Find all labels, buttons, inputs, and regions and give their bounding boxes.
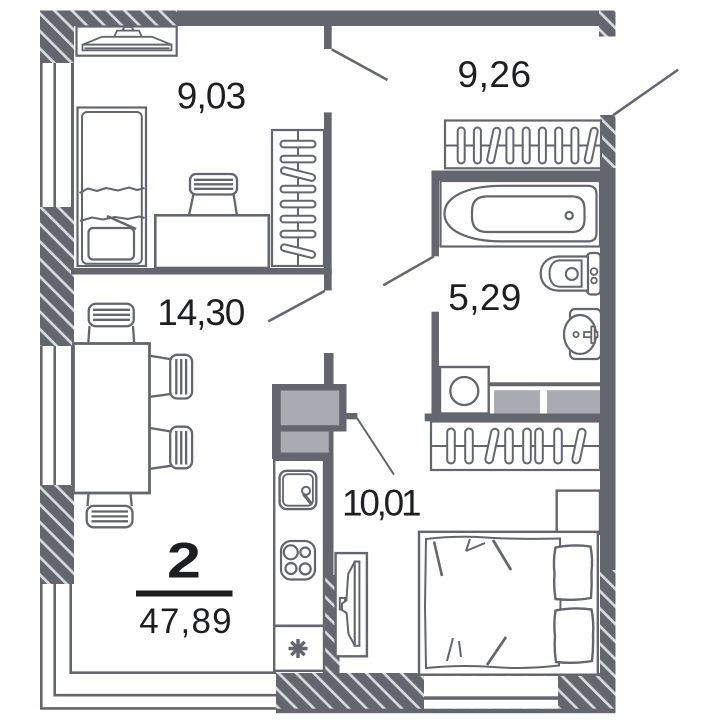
svg-text:10,01: 10,01: [342, 483, 422, 524]
svg-text:2: 2: [167, 533, 201, 589]
svg-text:14,30: 14,30: [157, 292, 245, 333]
svg-text:9,03: 9,03: [177, 76, 247, 117]
svg-text:5,29: 5,29: [448, 277, 521, 318]
svg-text:47,89: 47,89: [139, 602, 231, 641]
svg-text:9,26: 9,26: [458, 54, 532, 95]
